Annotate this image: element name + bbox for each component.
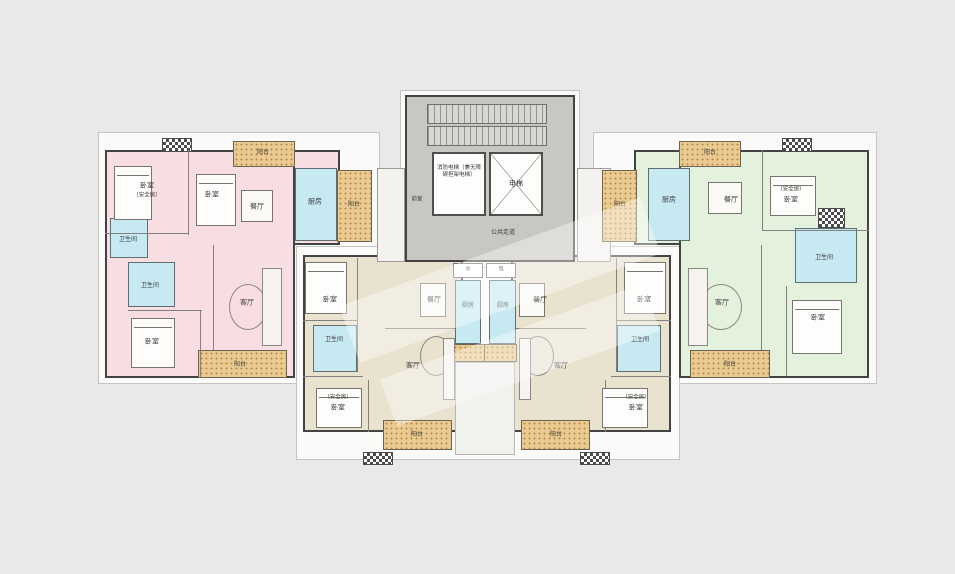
room-label-living: 客厅 (715, 300, 729, 307)
room-label-bedroom: 卧室 (140, 183, 154, 190)
partition-wall (303, 320, 357, 321)
void-hatch (363, 452, 393, 465)
partition-wall (617, 320, 671, 321)
partition-wall (786, 286, 787, 376)
room-label-living: 客厅 (554, 363, 568, 370)
sofa-icon (688, 268, 708, 346)
partition-wall (616, 258, 617, 372)
room-label-balcony: 阳台 (348, 202, 360, 208)
bed-icon (792, 300, 842, 354)
room-label-safe-room: （安全房） (777, 187, 805, 193)
room-label-living: 客厅 (406, 363, 420, 370)
partition-wall (105, 233, 188, 234)
corridor-label: 公共走道 (491, 230, 515, 236)
room-label-balcony: 阳台 (234, 362, 246, 368)
partition-wall (128, 310, 202, 311)
room-label-dining: 餐厅 (724, 197, 738, 204)
partition-wall (762, 230, 869, 231)
sofa-icon (519, 338, 531, 400)
fire-elevator-label: 消防电梯（兼无障碍担架电梯） (437, 165, 481, 179)
staircase (427, 126, 547, 146)
service-yard-right (484, 344, 517, 362)
void-hatch (580, 452, 610, 465)
void-hatch (782, 138, 812, 152)
room-label-balcony: 阳台 (411, 432, 423, 438)
partition-wall (761, 245, 762, 350)
service-yard-left (452, 344, 485, 362)
electric-meter-label: 电 (498, 267, 504, 273)
room-label-bedroom: 卧室 (145, 339, 159, 346)
partition-wall (385, 328, 455, 329)
kitchen-right-unit (648, 168, 690, 241)
void-hatch (818, 208, 845, 228)
room-label-bathroom: 卫生间 (815, 255, 833, 261)
room-label-kitchen: 厨房 (308, 199, 322, 206)
room-label-balcony: 阳台 (704, 150, 716, 156)
room-label-balcony: 阳台 (724, 362, 736, 368)
partition-wall (368, 380, 369, 432)
lobby-label: 前室 (411, 197, 422, 203)
room-label-bedroom: 卧室 (323, 297, 337, 304)
room-label-kitchen: 厨房 (462, 303, 474, 309)
room-label-balcony: 阳台 (257, 150, 269, 156)
room-label-bedroom: 卧室 (811, 315, 825, 322)
room-label-bedroom: 卧室 (205, 192, 219, 199)
partition-wall (357, 258, 358, 372)
fire-elevator-shaft (432, 152, 486, 216)
room-label-balcony: 阳台 (614, 202, 626, 208)
room-label-bathroom: 卫生间 (325, 337, 343, 343)
kitchen-bottom-left-unit (455, 280, 481, 344)
partition-wall (200, 310, 201, 378)
room-label-dining: 餐厅 (250, 204, 264, 211)
room-label-safe-room: （安全房） (133, 193, 161, 199)
room-label-kitchen: 厨房 (497, 303, 509, 309)
partition-wall (303, 376, 363, 377)
room-label-bedroom: 卧室 (784, 197, 798, 204)
sofa-icon (443, 338, 455, 400)
staircase (427, 104, 547, 124)
elevator-label: 电梯 (509, 181, 523, 188)
sofa-icon (262, 268, 282, 346)
room-label-bathroom: 卫生间 (119, 237, 137, 243)
room-label-dining: 餐厅 (427, 297, 441, 304)
bed-icon (305, 262, 347, 314)
room-label-dining: 餐厅 (533, 297, 547, 304)
room-label-bathroom: 卫生间 (141, 283, 159, 289)
central-light-well (455, 362, 515, 455)
bed-icon (196, 174, 236, 226)
room-label-bathroom: 卫生间 (631, 337, 649, 343)
room-label-bedroom: 卧室 (629, 405, 643, 412)
room-label-balcony: 阳台 (550, 432, 562, 438)
partition-wall (188, 150, 189, 235)
room-label-bedroom: 卧室 (637, 297, 651, 304)
bathroom-bottom-left-unit (313, 325, 357, 372)
kitchen-bottom-right-unit (489, 280, 516, 344)
water-meter-label: 水 (465, 267, 471, 273)
bathroom-bottom-right-unit (617, 325, 661, 372)
room-label-living: 客厅 (240, 300, 254, 307)
room-label-safe-room: （安全房） (324, 395, 352, 401)
room-label-bedroom: 卧室 (331, 405, 345, 412)
room-label-kitchen: 厨房 (662, 197, 676, 204)
room-label-safe-room: （安全房） (622, 395, 650, 401)
partition-wall (516, 328, 586, 329)
partition-wall (611, 376, 671, 377)
corridor-left (377, 168, 405, 262)
partition-wall (762, 150, 763, 230)
partition-wall (213, 245, 214, 350)
bed-icon (624, 262, 666, 314)
